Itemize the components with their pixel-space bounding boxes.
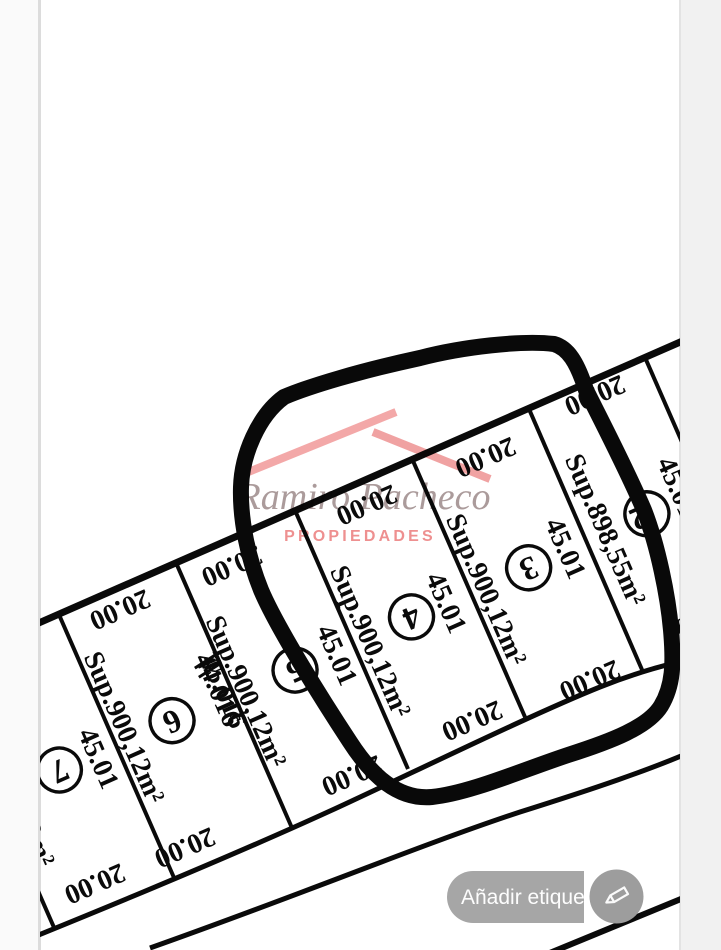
svg-text:PROPIEDADES: PROPIEDADES	[284, 528, 436, 545]
svg-text:Ramiro Pacheco: Ramiro Pacheco	[237, 476, 491, 518]
svg-text:Añadir etiquet: Añadir etiquet	[461, 886, 591, 909]
